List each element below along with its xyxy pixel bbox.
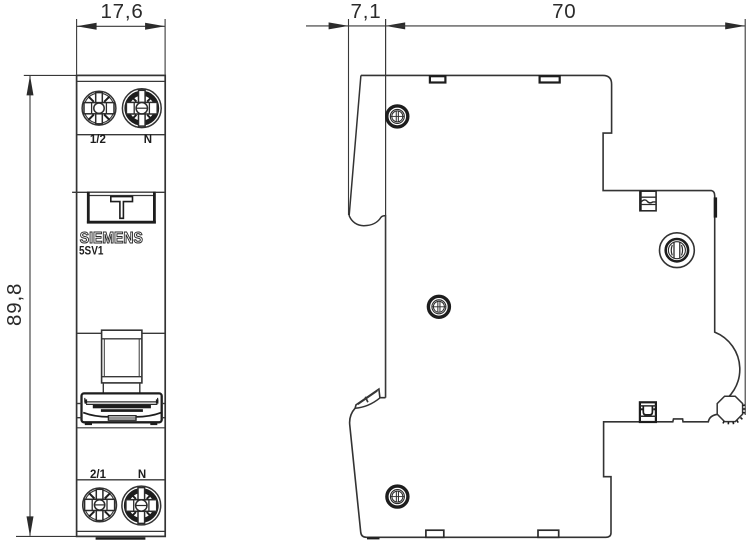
svg-text:17,6: 17,6 bbox=[100, 0, 143, 23]
svg-text:1/2: 1/2 bbox=[90, 134, 106, 146]
svg-text:70: 70 bbox=[552, 0, 576, 23]
svg-text:89,8: 89,8 bbox=[3, 283, 26, 326]
svg-text:7,1: 7,1 bbox=[351, 0, 382, 23]
svg-text:5SV1: 5SV1 bbox=[79, 243, 104, 257]
svg-text:N: N bbox=[144, 134, 152, 146]
